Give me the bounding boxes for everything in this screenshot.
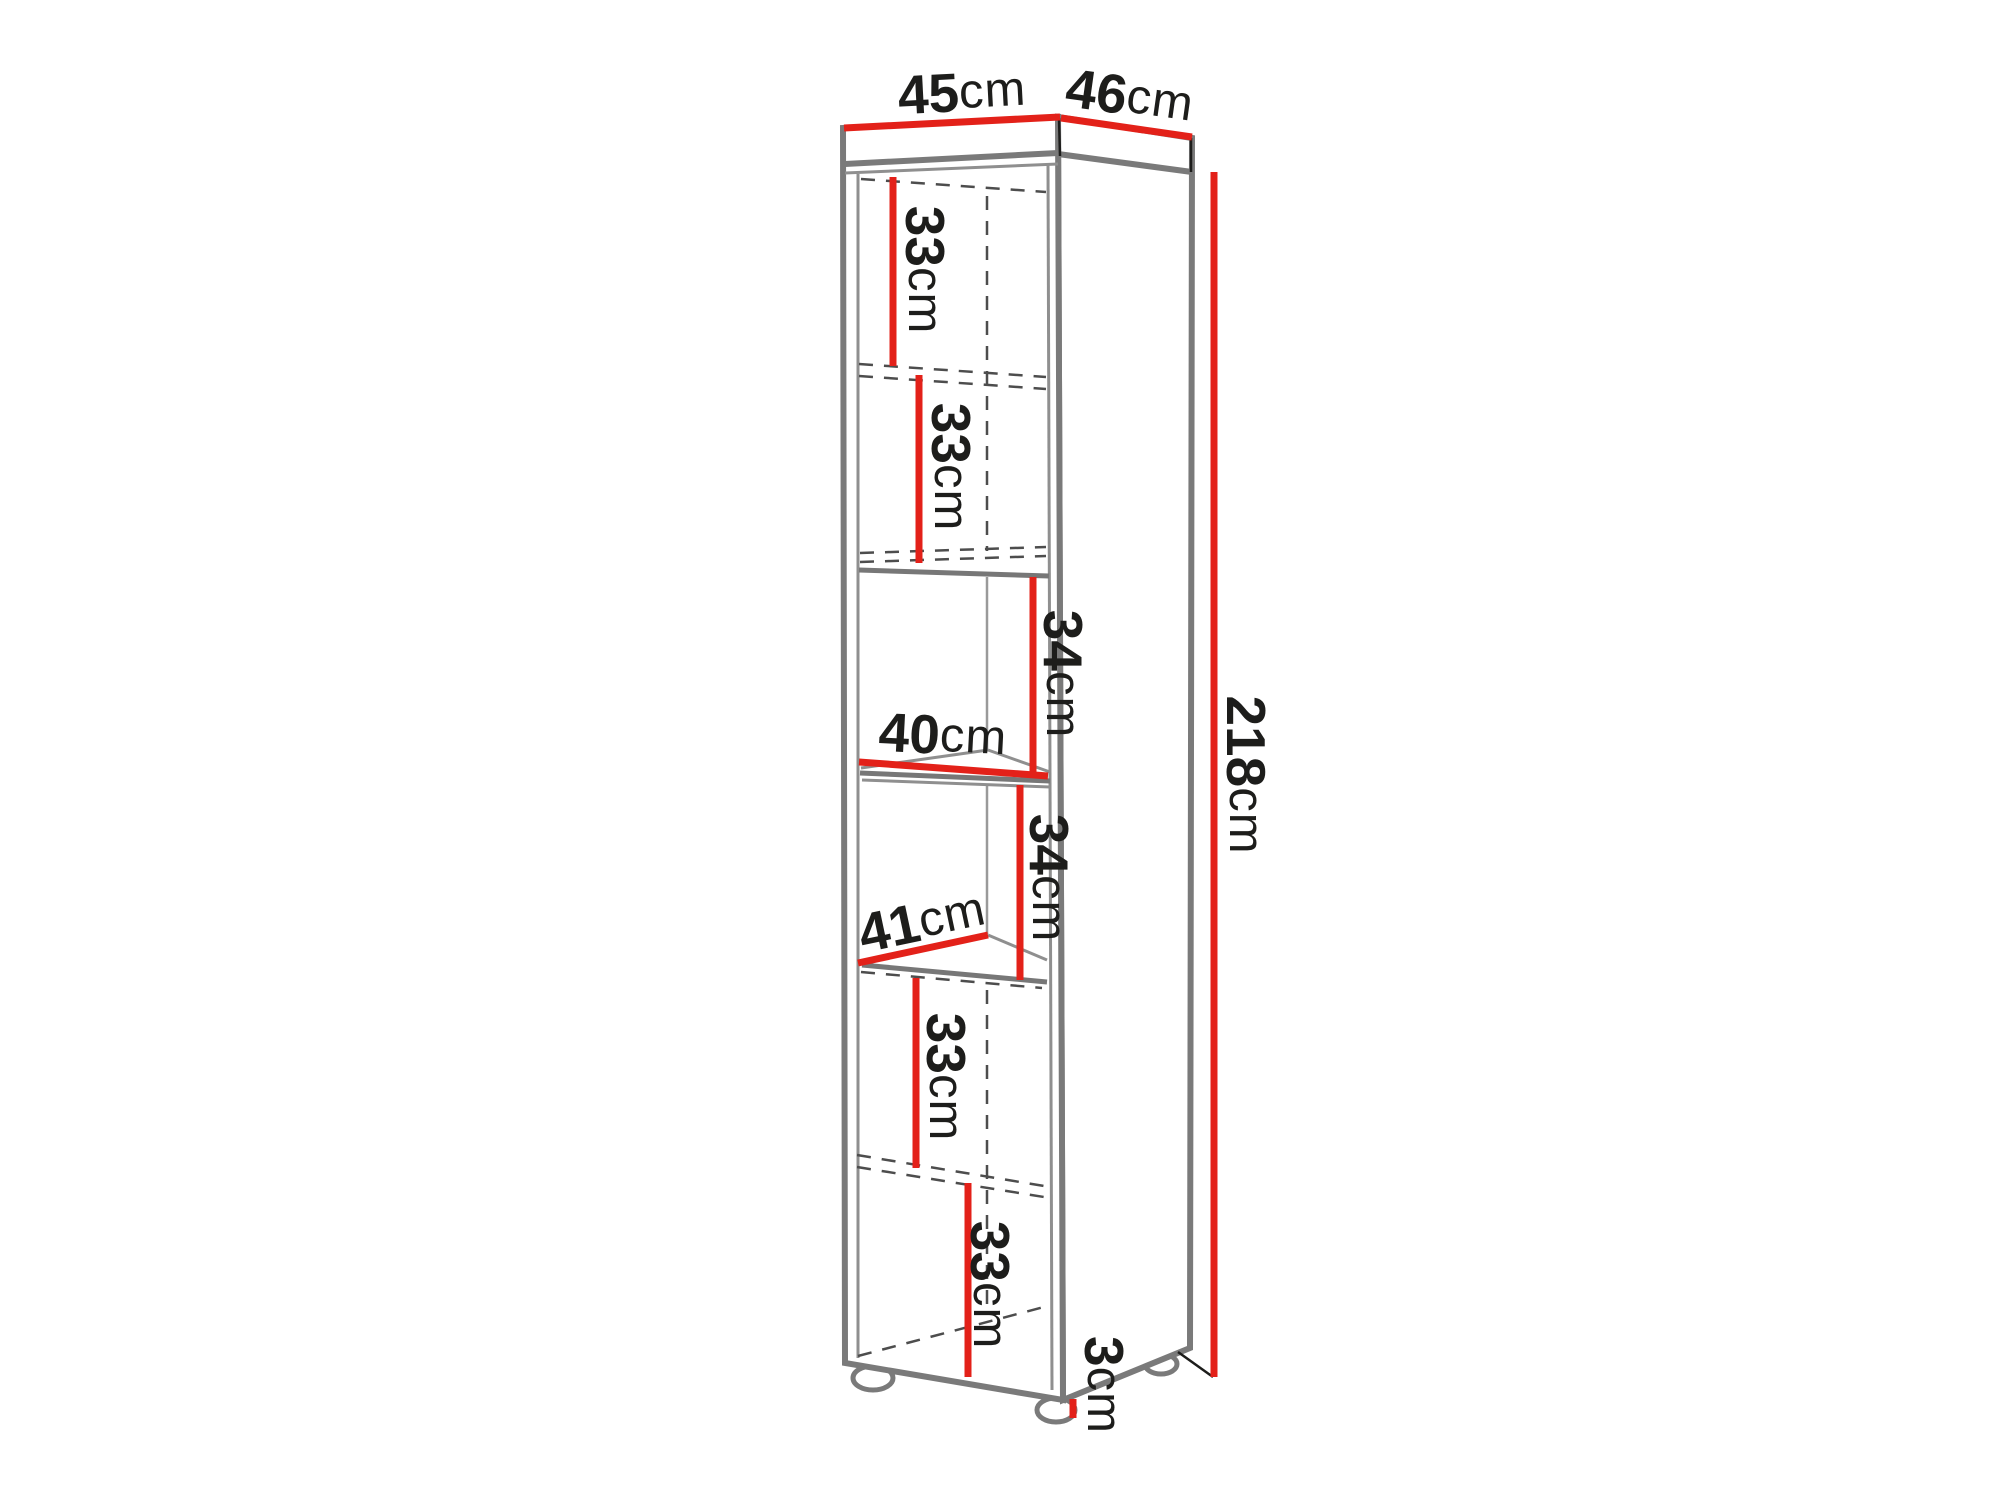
label-section5: 33cm [915, 1013, 977, 1142]
cabinet-side-face [1058, 117, 1192, 1400]
label-section2: 33cm [920, 403, 982, 532]
label-section6: 33cm [959, 1221, 1021, 1350]
label-section4: 34cm [1018, 814, 1080, 943]
diagram-canvas: 45cm 46cm 218cm 33cm 33cm 34cm 40cm 34cm… [0, 0, 2000, 1500]
label-feet-height: 3cm [1073, 1336, 1135, 1434]
label-height: 218cm [1215, 695, 1277, 854]
label-shelf-width: 40cm [877, 701, 1009, 770]
label-width: 45cm [896, 58, 1028, 127]
extension-line-bottom-right [1178, 1352, 1213, 1377]
label-section3: 34cm [1032, 610, 1094, 739]
label-section1: 33cm [894, 206, 956, 335]
cabinet-dimension-diagram: 45cm 46cm 218cm 33cm 33cm 34cm 40cm 34cm… [0, 0, 2000, 1500]
extension-line-top-corner [1059, 118, 1060, 156]
